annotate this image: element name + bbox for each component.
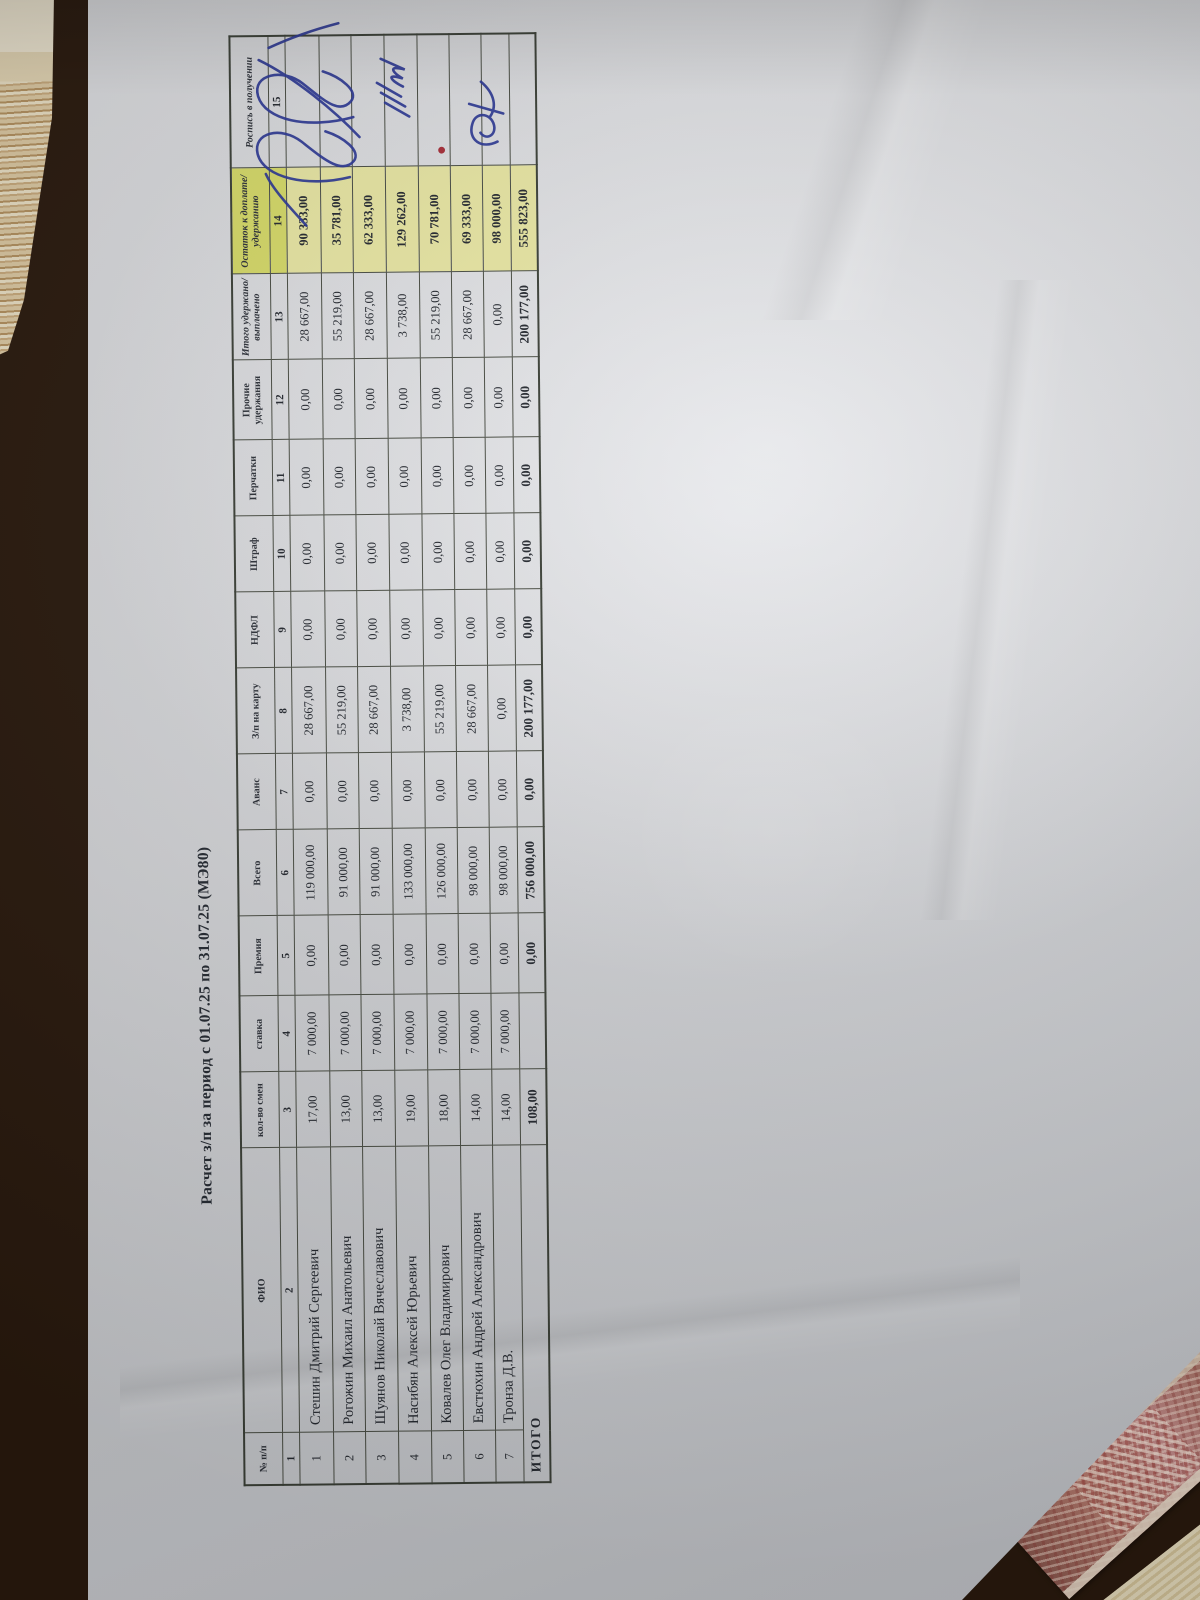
cell-value-col-3: 13,00	[329, 1071, 362, 1147]
col-header-8: З/п на карту	[236, 668, 275, 754]
cell-value-col-3: 17,00	[295, 1071, 330, 1147]
payroll-table: № п/пФИОкол-во сменставкаПремияВсегоАван…	[228, 32, 551, 1486]
col-number-6: 6	[276, 830, 294, 916]
cell-value-col-6: 126 000,00	[425, 828, 458, 914]
cell-value-col-6: 133 000,00	[392, 828, 426, 914]
totals-value-col-5: 0,00	[518, 913, 546, 993]
cell-fio: Стешин Дмитрий Сергеевич	[296, 1147, 333, 1432]
cell-value-col-4: 7 000,00	[360, 995, 394, 1071]
cell-value-col-11: 0,00	[485, 437, 514, 513]
cell-value-col-9: 0,00	[454, 590, 487, 666]
cell-value-col-7: 0,00	[488, 751, 517, 827]
cell-value-col-3: 13,00	[361, 1071, 395, 1147]
cell-value-col-10: 0,00	[323, 515, 356, 591]
cell-value-col-7: 0,00	[326, 753, 359, 829]
col-header-12: Прочие удержания	[233, 360, 272, 440]
col-header-4: ставка	[239, 996, 278, 1072]
cell-value-col-8: 28 667,00	[357, 667, 391, 753]
ink-marks-overlay	[242, 3, 544, 236]
cell-value-col-10: 0,00	[453, 514, 486, 590]
totals-value-col-4	[518, 993, 546, 1069]
signature-ink	[259, 59, 360, 138]
col-number-10: 10	[272, 516, 290, 592]
cell-fio: Рогожин Михаил Анатольевич	[330, 1147, 365, 1432]
cell-value-col-7: 0,00	[358, 753, 392, 829]
cell-value-col-10: 0,00	[485, 513, 514, 589]
cell-value-col-4: 7 000,00	[426, 994, 459, 1070]
cell-value-col-10: 0,00	[355, 515, 389, 591]
cell-value-col-10: 0,00	[421, 514, 454, 590]
totals-value-col-12: 0,00	[512, 357, 540, 437]
cell-value-col-13: 28 667,00	[451, 272, 484, 358]
cell-row-number: 1	[299, 1432, 334, 1484]
totals-value-col-11: 0,00	[513, 437, 541, 513]
cell-value-col-13: 28 667,00	[353, 273, 387, 359]
cell-row-number: 2	[333, 1432, 366, 1484]
cell-value-col-12: 0,00	[484, 357, 513, 437]
red-dot-mark	[438, 147, 445, 154]
col-number-7: 7	[275, 754, 293, 830]
cash-wad	[0, 0, 66, 358]
cell-value-col-4: 7 000,00	[328, 995, 361, 1071]
cell-value-col-8: 55 219,00	[423, 666, 456, 752]
cell-value-col-10: 0,00	[388, 514, 422, 590]
cell-value-col-5: 0,00	[360, 915, 394, 995]
col-header-11: Перчатки	[234, 440, 273, 516]
cell-row-number: 7	[495, 1430, 524, 1482]
cell-value-col-12: 0,00	[420, 358, 453, 438]
cell-fio: Евстюхин Андрей Александрович	[460, 1146, 495, 1431]
cell-value-col-3: 19,00	[394, 1070, 428, 1146]
col-header-10: Штраф	[234, 516, 273, 592]
cell-value-col-12: 0,00	[288, 359, 323, 439]
cell-row-number: 3	[365, 1432, 399, 1484]
cell-value-col-4: 7 000,00	[458, 994, 491, 1070]
cell-value-col-7: 0,00	[424, 752, 457, 828]
cell-value-col-13: 55 219,00	[419, 272, 452, 358]
cell-value-col-9: 0,00	[486, 589, 515, 665]
cell-value-col-11: 0,00	[355, 439, 389, 515]
signature-ink	[377, 59, 410, 117]
cell-value-col-9: 0,00	[290, 591, 325, 667]
cell-row-number: 5	[431, 1431, 464, 1483]
signature-ink	[268, 23, 338, 48]
cell-value-col-5: 0,00	[294, 915, 329, 995]
cell-value-col-13: 0,00	[483, 271, 512, 357]
photo-of-payroll-sheet: Расчет з/п за период с 01.07.25 по 31.07…	[0, 0, 1200, 1600]
col-number-3: 3	[278, 1072, 296, 1148]
cell-value-col-8: 3 738,00	[390, 666, 424, 752]
col-header-3: кол-во смен	[240, 1072, 279, 1148]
cell-value-col-8: 0,00	[487, 665, 516, 751]
cell-value-col-6: 91 000,00	[359, 829, 393, 915]
cell-value-col-6: 98 000,00	[489, 827, 518, 913]
signature-ink	[469, 82, 504, 145]
totals-value-col-6: 756 000,00	[517, 827, 545, 913]
cell-value-col-4: 7 000,00	[393, 994, 427, 1070]
cell-row-number: 4	[398, 1431, 432, 1483]
cell-value-col-11: 0,00	[453, 438, 486, 514]
cell-value-col-11: 0,00	[388, 438, 422, 514]
cell-value-col-7: 0,00	[391, 752, 425, 828]
cell-value-col-9: 0,00	[356, 591, 390, 667]
paper-crease	[520, 0, 1200, 320]
totals-value-col-7: 0,00	[516, 751, 544, 827]
totals-label: ИТОГО	[520, 1145, 551, 1482]
cell-value-col-7: 0,00	[456, 752, 489, 828]
cell-value-col-4: 7 000,00	[294, 995, 329, 1071]
col-number-1: 1	[282, 1433, 300, 1485]
paper-crease	[760, 280, 1200, 920]
cell-value-col-12: 0,00	[387, 358, 421, 438]
cell-value-col-11: 0,00	[289, 439, 324, 515]
cell-value-col-11: 0,00	[421, 438, 454, 514]
col-number-5: 5	[277, 916, 295, 996]
cell-value-col-5: 0,00	[426, 914, 459, 994]
cell-value-col-9: 0,00	[422, 590, 455, 666]
totals-value-col-8: 200 177,00	[515, 665, 543, 751]
cell-value-col-12: 0,00	[322, 359, 355, 439]
cell-value-col-5: 0,00	[393, 914, 427, 994]
cell-fio: Тронза Д.В.	[492, 1145, 523, 1430]
signature-ink	[257, 131, 356, 182]
totals-value-col-13: 200 177,00	[511, 271, 539, 357]
totals-value-col-10: 0,00	[513, 513, 541, 589]
document-title: Расчет з/п за период с 01.07.25 по 31.07…	[186, 37, 218, 1205]
cell-value-col-13: 55 219,00	[321, 273, 354, 359]
cell-value-col-5: 0,00	[458, 914, 491, 994]
cell-value-col-4: 7 000,00	[490, 993, 519, 1069]
payroll-document: Расчет з/п за период с 01.07.25 по 31.07…	[182, 33, 547, 1487]
cell-value-col-6: 119 000,00	[293, 829, 328, 915]
col-number-12: 12	[271, 360, 289, 440]
cell-value-col-3: 18,00	[427, 1070, 460, 1146]
cell-value-col-12: 0,00	[354, 359, 388, 439]
cell-value-col-7: 0,00	[292, 753, 327, 829]
cell-value-col-3: 14,00	[459, 1070, 492, 1146]
totals-value-col-3: 108,00	[519, 1069, 547, 1145]
cell-value-col-5: 0,00	[328, 915, 361, 995]
col-number-13: 13	[270, 274, 288, 360]
cell-value-col-11: 0,00	[323, 439, 356, 515]
cell-fio: Насибян Алексей Юрьевич	[395, 1146, 431, 1431]
cell-value-col-6: 91 000,00	[327, 829, 360, 915]
col-number-4: 4	[277, 996, 295, 1072]
col-header-6: Всего	[238, 830, 277, 916]
paper-crease	[560, 620, 980, 1040]
col-number-8: 8	[274, 668, 292, 754]
paper-sheet: Расчет з/п за период с 01.07.25 по 31.07…	[0, 0, 1200, 1600]
col-header-9: НДФЛ	[235, 592, 274, 668]
totals-value-col-9: 0,00	[514, 589, 542, 665]
col-header-2: ФИО	[241, 1148, 282, 1433]
cell-value-col-9: 0,00	[324, 591, 357, 667]
cell-value-col-9: 0,00	[389, 590, 423, 666]
col-header-7: Аванс	[237, 754, 276, 830]
cell-value-col-10: 0,00	[289, 515, 324, 591]
cell-value-col-5: 0,00	[490, 913, 519, 993]
cell-value-col-13: 28 667,00	[287, 273, 322, 359]
cell-value-col-8: 28 667,00	[291, 667, 326, 753]
cell-value-col-3: 14,00	[491, 1069, 520, 1145]
cell-value-col-6: 98 000,00	[457, 828, 490, 914]
col-number-9: 9	[273, 592, 291, 668]
cell-value-col-8: 28 667,00	[455, 666, 488, 752]
col-header-1: № п/п	[244, 1433, 283, 1485]
cell-value-col-12: 0,00	[452, 358, 485, 438]
cell-fio: Ковалев Олег Владимирович	[428, 1146, 463, 1431]
col-header-5: Премия	[239, 916, 278, 996]
col-number-11: 11	[272, 440, 290, 516]
cell-row-number: 6	[463, 1431, 496, 1483]
cell-value-col-13: 3 738,00	[386, 272, 420, 358]
cell-fio: Шуянов Николай Вячеславович	[362, 1147, 398, 1432]
col-header-13: Итого удержано/ выплачено	[232, 274, 271, 360]
cell-value-col-8: 55 219,00	[325, 667, 358, 753]
